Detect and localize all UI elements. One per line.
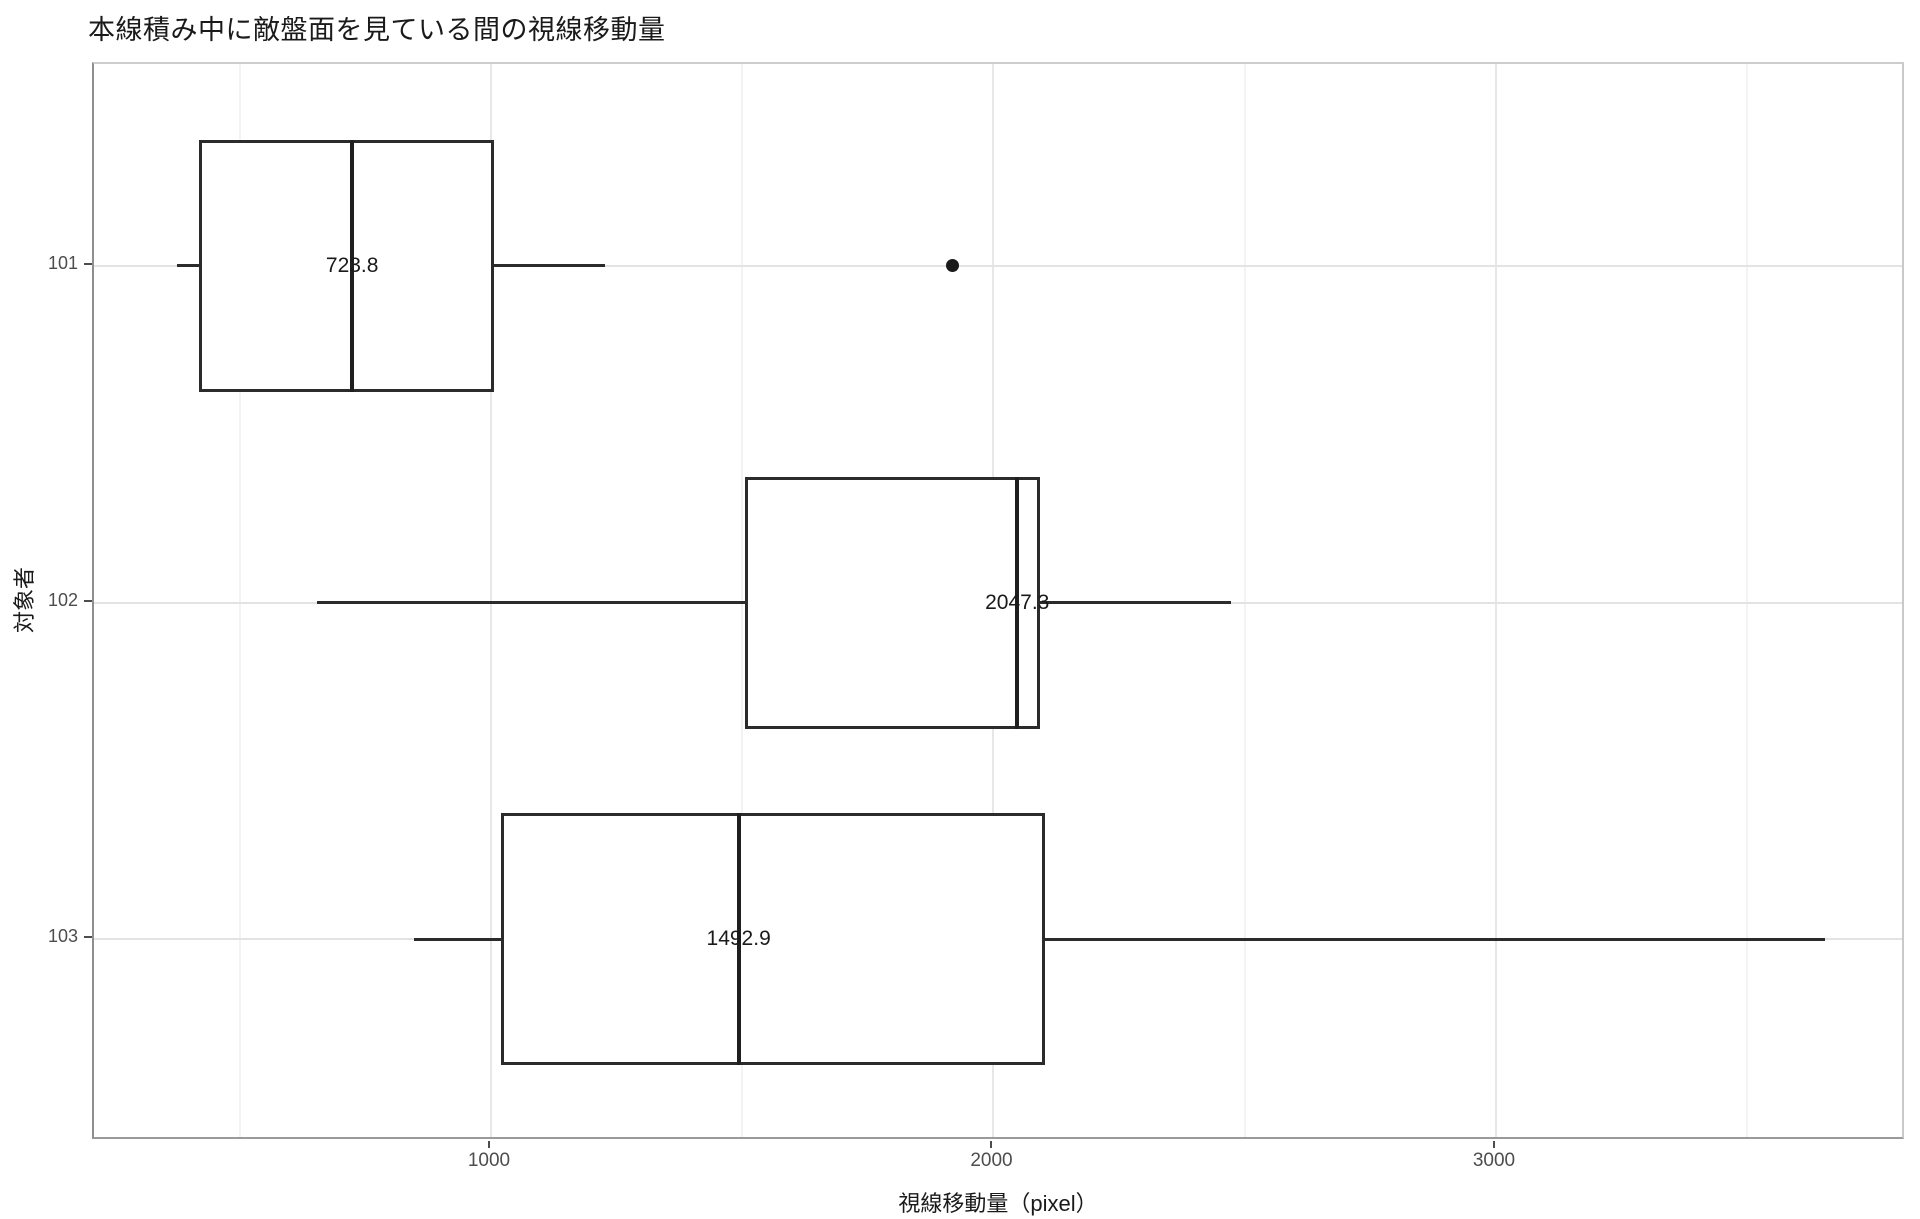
median-value-label: 1492.9: [707, 927, 771, 951]
y-tick-label: 102: [28, 590, 78, 611]
median-value-label: 723.8: [326, 254, 379, 278]
chart-root: 本線積み中に敵盤面を見ている間の視線移動量 対象者 723.82047.3149…: [0, 0, 1920, 1219]
chart-title: 本線積み中に敵盤面を見ている間の視線移動量: [88, 8, 666, 47]
median-value-label: 2047.3: [985, 591, 1049, 615]
x-tick-label: 3000: [1473, 1150, 1515, 1172]
y-tick-label: 103: [28, 926, 78, 947]
plot-panel: 723.82047.31492.9: [92, 62, 1904, 1139]
x-tick-label: 2000: [970, 1150, 1012, 1172]
y-tick-mark: [84, 936, 92, 938]
x-axis-label: 視線移動量（pixel）: [92, 1186, 1904, 1218]
minor-gridline: [1746, 64, 1748, 1137]
outlier-point: [946, 259, 959, 272]
y-tick-label: 101: [28, 253, 78, 274]
minor-gridline: [1244, 64, 1246, 1137]
box-iqr: [501, 813, 1045, 1065]
x-tick-mark: [488, 1141, 490, 1148]
y-tick-mark: [84, 600, 92, 602]
x-tick-mark: [1493, 1141, 1495, 1148]
x-tick-label: 1000: [468, 1150, 510, 1172]
y-tick-mark: [84, 263, 92, 265]
major-gridline: [1495, 64, 1497, 1137]
x-tick-mark: [990, 1141, 992, 1148]
